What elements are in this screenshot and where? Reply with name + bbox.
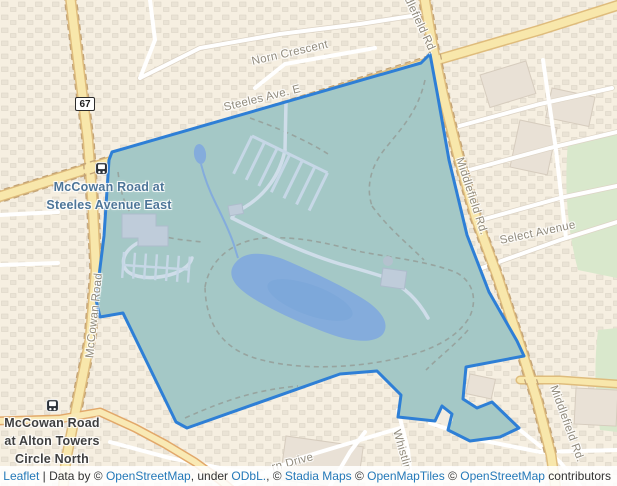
attribution-text: © <box>445 469 461 483</box>
openstreetmap-link-2[interactable]: OpenStreetMap <box>460 469 545 483</box>
openmaptiles-link[interactable]: OpenMapTiles <box>367 469 445 483</box>
stop-label-line: at Alton Towers <box>0 432 112 450</box>
attribution-text: , © <box>266 469 285 483</box>
map-container[interactable]: Norn Crescent Steeles Ave. E Middlefield… <box>0 0 617 486</box>
stop-label-mccowan-alton: McCowan Road at Alton Towers Circle Nort… <box>0 414 112 468</box>
fountain <box>383 256 393 266</box>
bus-stop-icon-steeles <box>95 162 108 175</box>
stop-label-mccowan-steeles: McCowan Road at Steeles Avenue East <box>28 178 190 214</box>
stop-label-line: Steeles Avenue East <box>28 196 190 214</box>
attribution-text: © <box>352 469 368 483</box>
odbl-link[interactable]: ODbL. <box>231 469 266 483</box>
route-badge-67: 67 <box>75 97 95 111</box>
attribution-text: contributors <box>545 469 611 483</box>
attribution-bar: Leaflet | Data by © OpenStreetMap, under… <box>0 466 617 486</box>
bus-stop-icon-alton <box>46 399 59 412</box>
attribution-text: | <box>39 469 49 483</box>
stop-label-line: McCowan Road <box>0 414 112 432</box>
attribution-text: Data by © <box>49 469 106 483</box>
leaflet-link[interactable]: Leaflet <box>3 469 39 483</box>
stadia-maps-link[interactable]: Stadia Maps <box>285 469 352 483</box>
attribution-text: , under <box>191 469 232 483</box>
openstreetmap-link[interactable]: OpenStreetMap <box>106 469 191 483</box>
stop-label-line: McCowan Road at <box>28 178 190 196</box>
